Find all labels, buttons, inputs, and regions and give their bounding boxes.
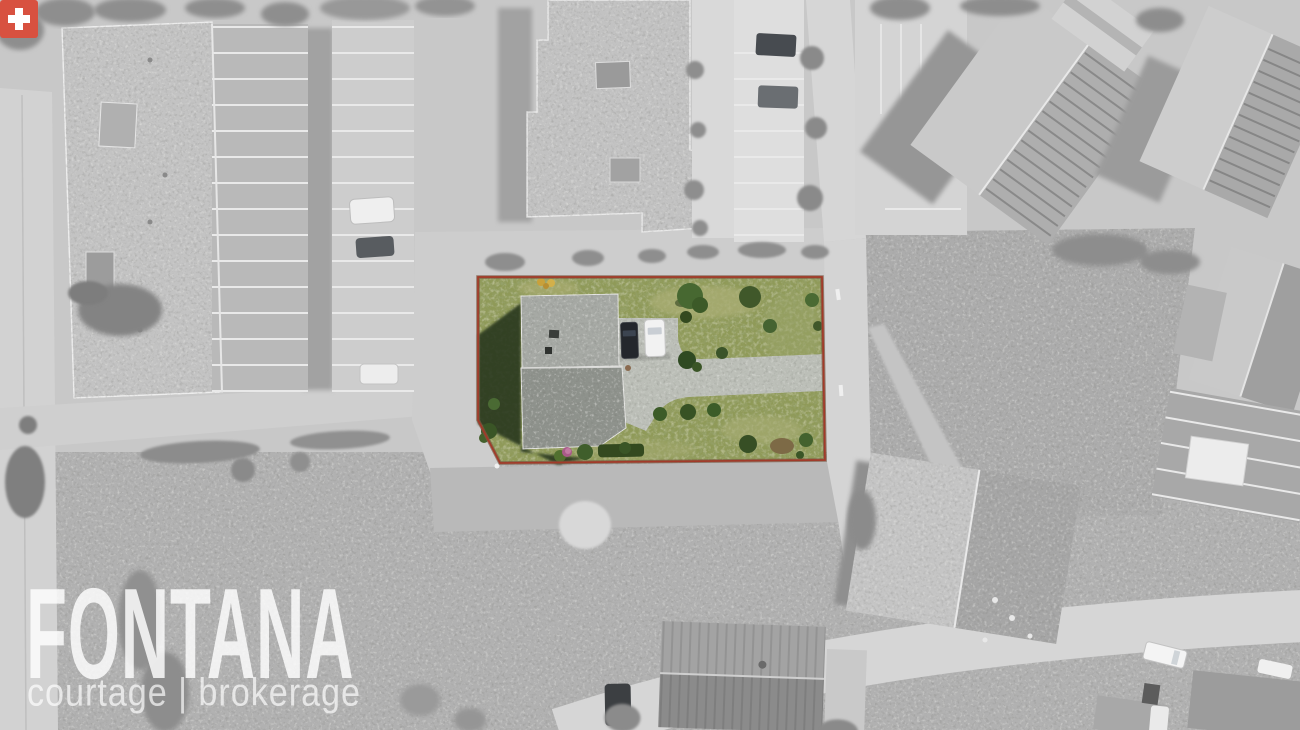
white-structure: [1185, 436, 1248, 486]
parked-car: [355, 236, 394, 259]
pavement-below-parcel: [430, 460, 842, 532]
roof-vent: [545, 347, 552, 354]
parked-car: [758, 85, 799, 108]
aerial-scene: [0, 0, 1300, 730]
car-dark: [620, 322, 638, 359]
blooming-tree: [559, 501, 611, 549]
apartment-building-topleft: [62, 20, 414, 398]
main-house-roof-upper: [521, 294, 619, 368]
rooftop-structure: [596, 61, 631, 88]
parked-car: [1149, 705, 1169, 730]
building-topmiddle: [498, 0, 827, 242]
flat-roof: [62, 22, 222, 398]
rooftop-structure: [610, 158, 640, 182]
parked-van: [349, 196, 395, 224]
parking-lines: [885, 192, 961, 232]
main-house-roof-lower: [521, 366, 626, 449]
parked-car: [360, 364, 398, 384]
main-house: [521, 294, 626, 449]
aerial-photo: FONTANA courtage | brokerage: [0, 0, 1300, 730]
roof-vent: [549, 330, 559, 339]
dry-bush: [770, 438, 794, 454]
flat-roof: [527, 0, 704, 232]
parked-car: [755, 33, 796, 57]
manhole-cover: [625, 365, 631, 371]
car-white: [644, 319, 665, 357]
conifer-tree: [5, 446, 45, 518]
highlighted-parcel: [478, 277, 825, 469]
rooftop-structure: [99, 102, 137, 148]
